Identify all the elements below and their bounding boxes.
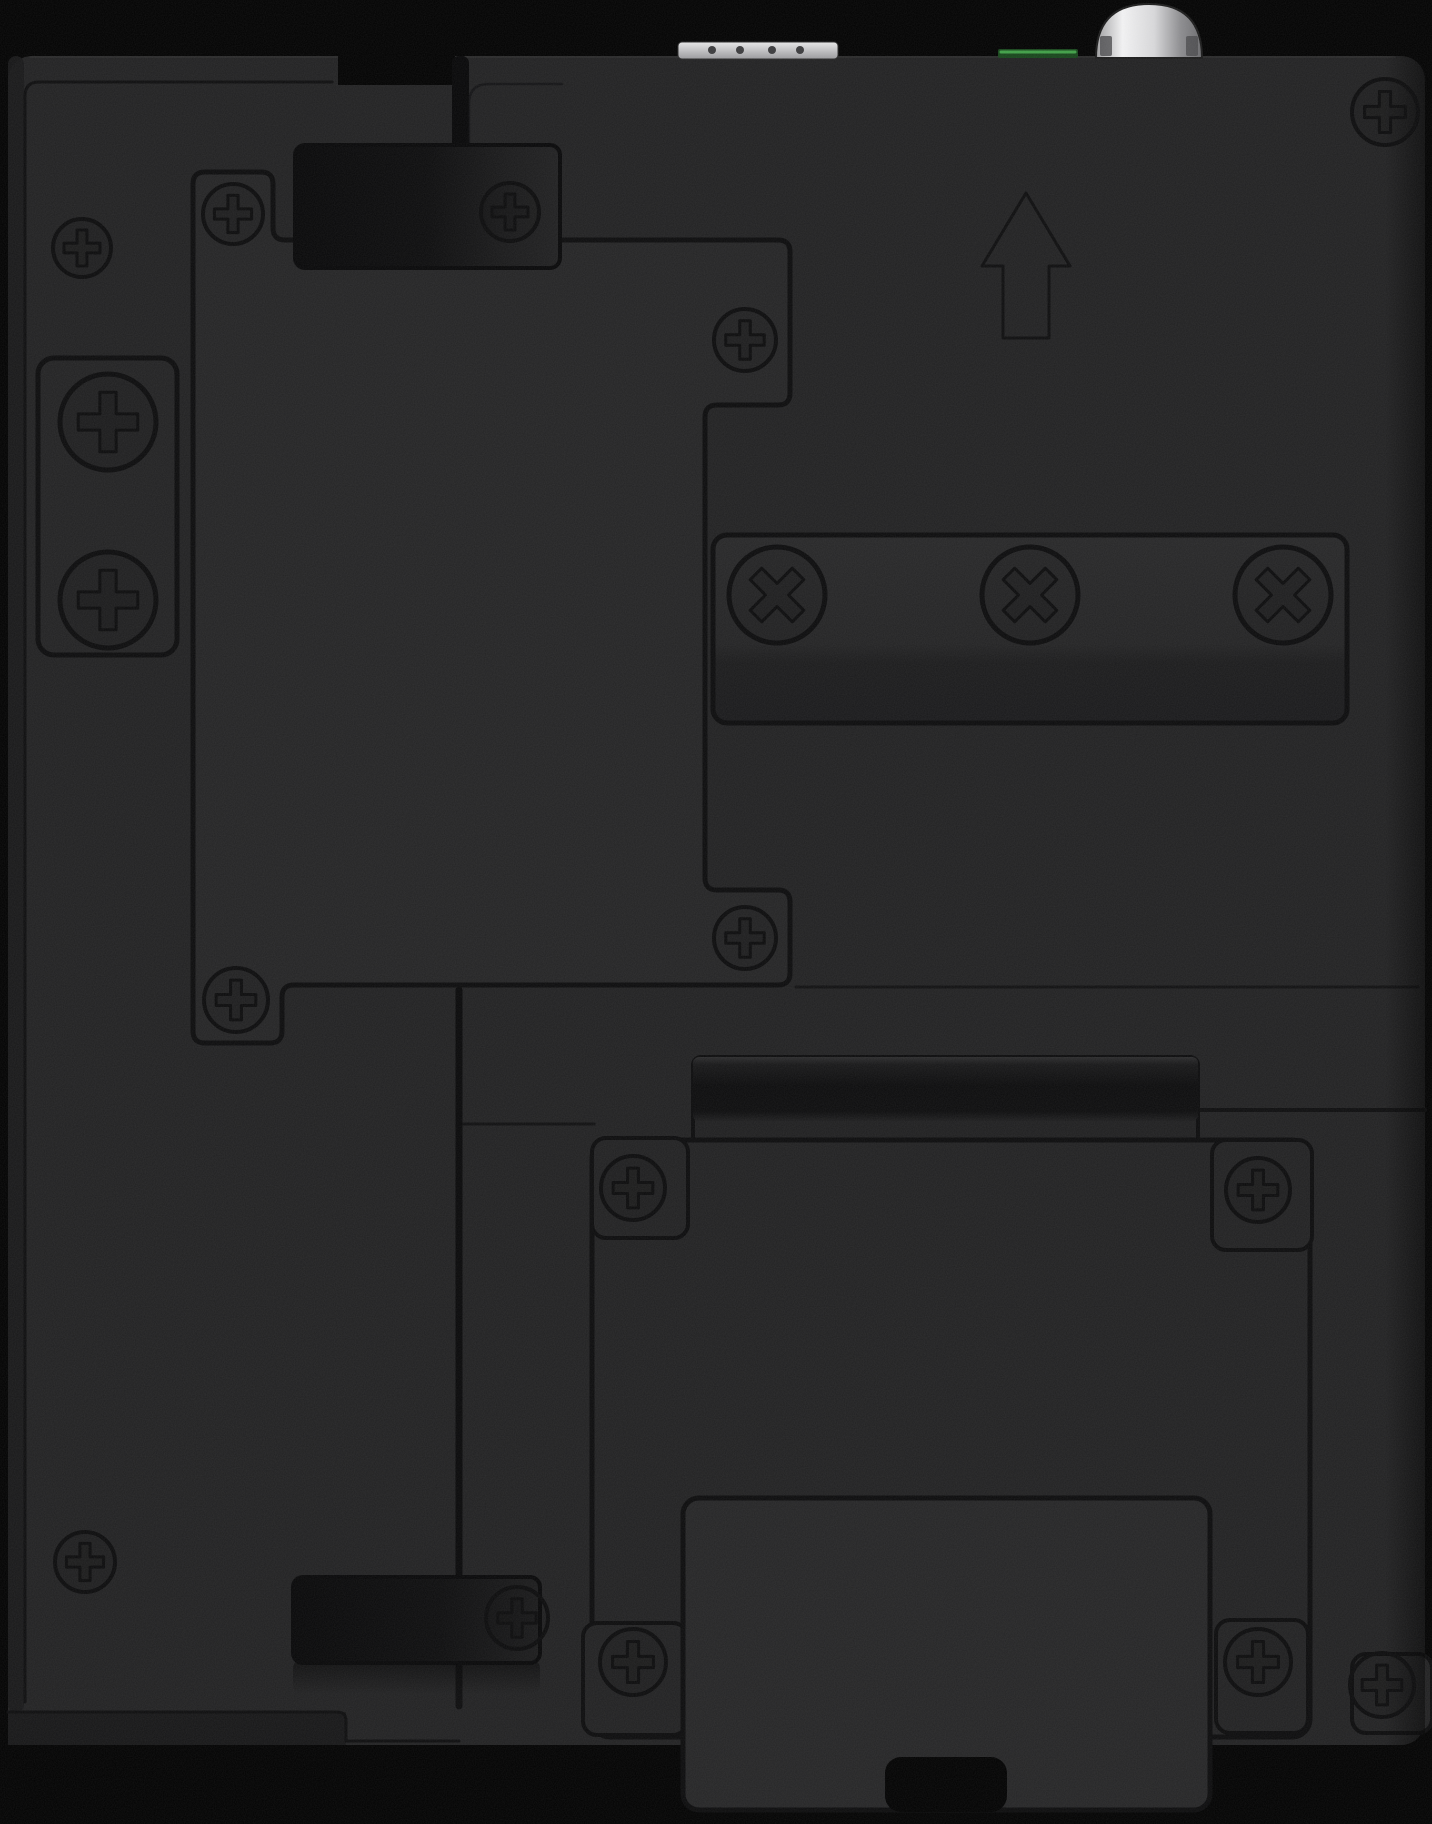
photo-grain-overlay <box>0 0 1432 1824</box>
device-back-render <box>0 0 1432 1824</box>
device-back-photo <box>0 0 1432 1824</box>
